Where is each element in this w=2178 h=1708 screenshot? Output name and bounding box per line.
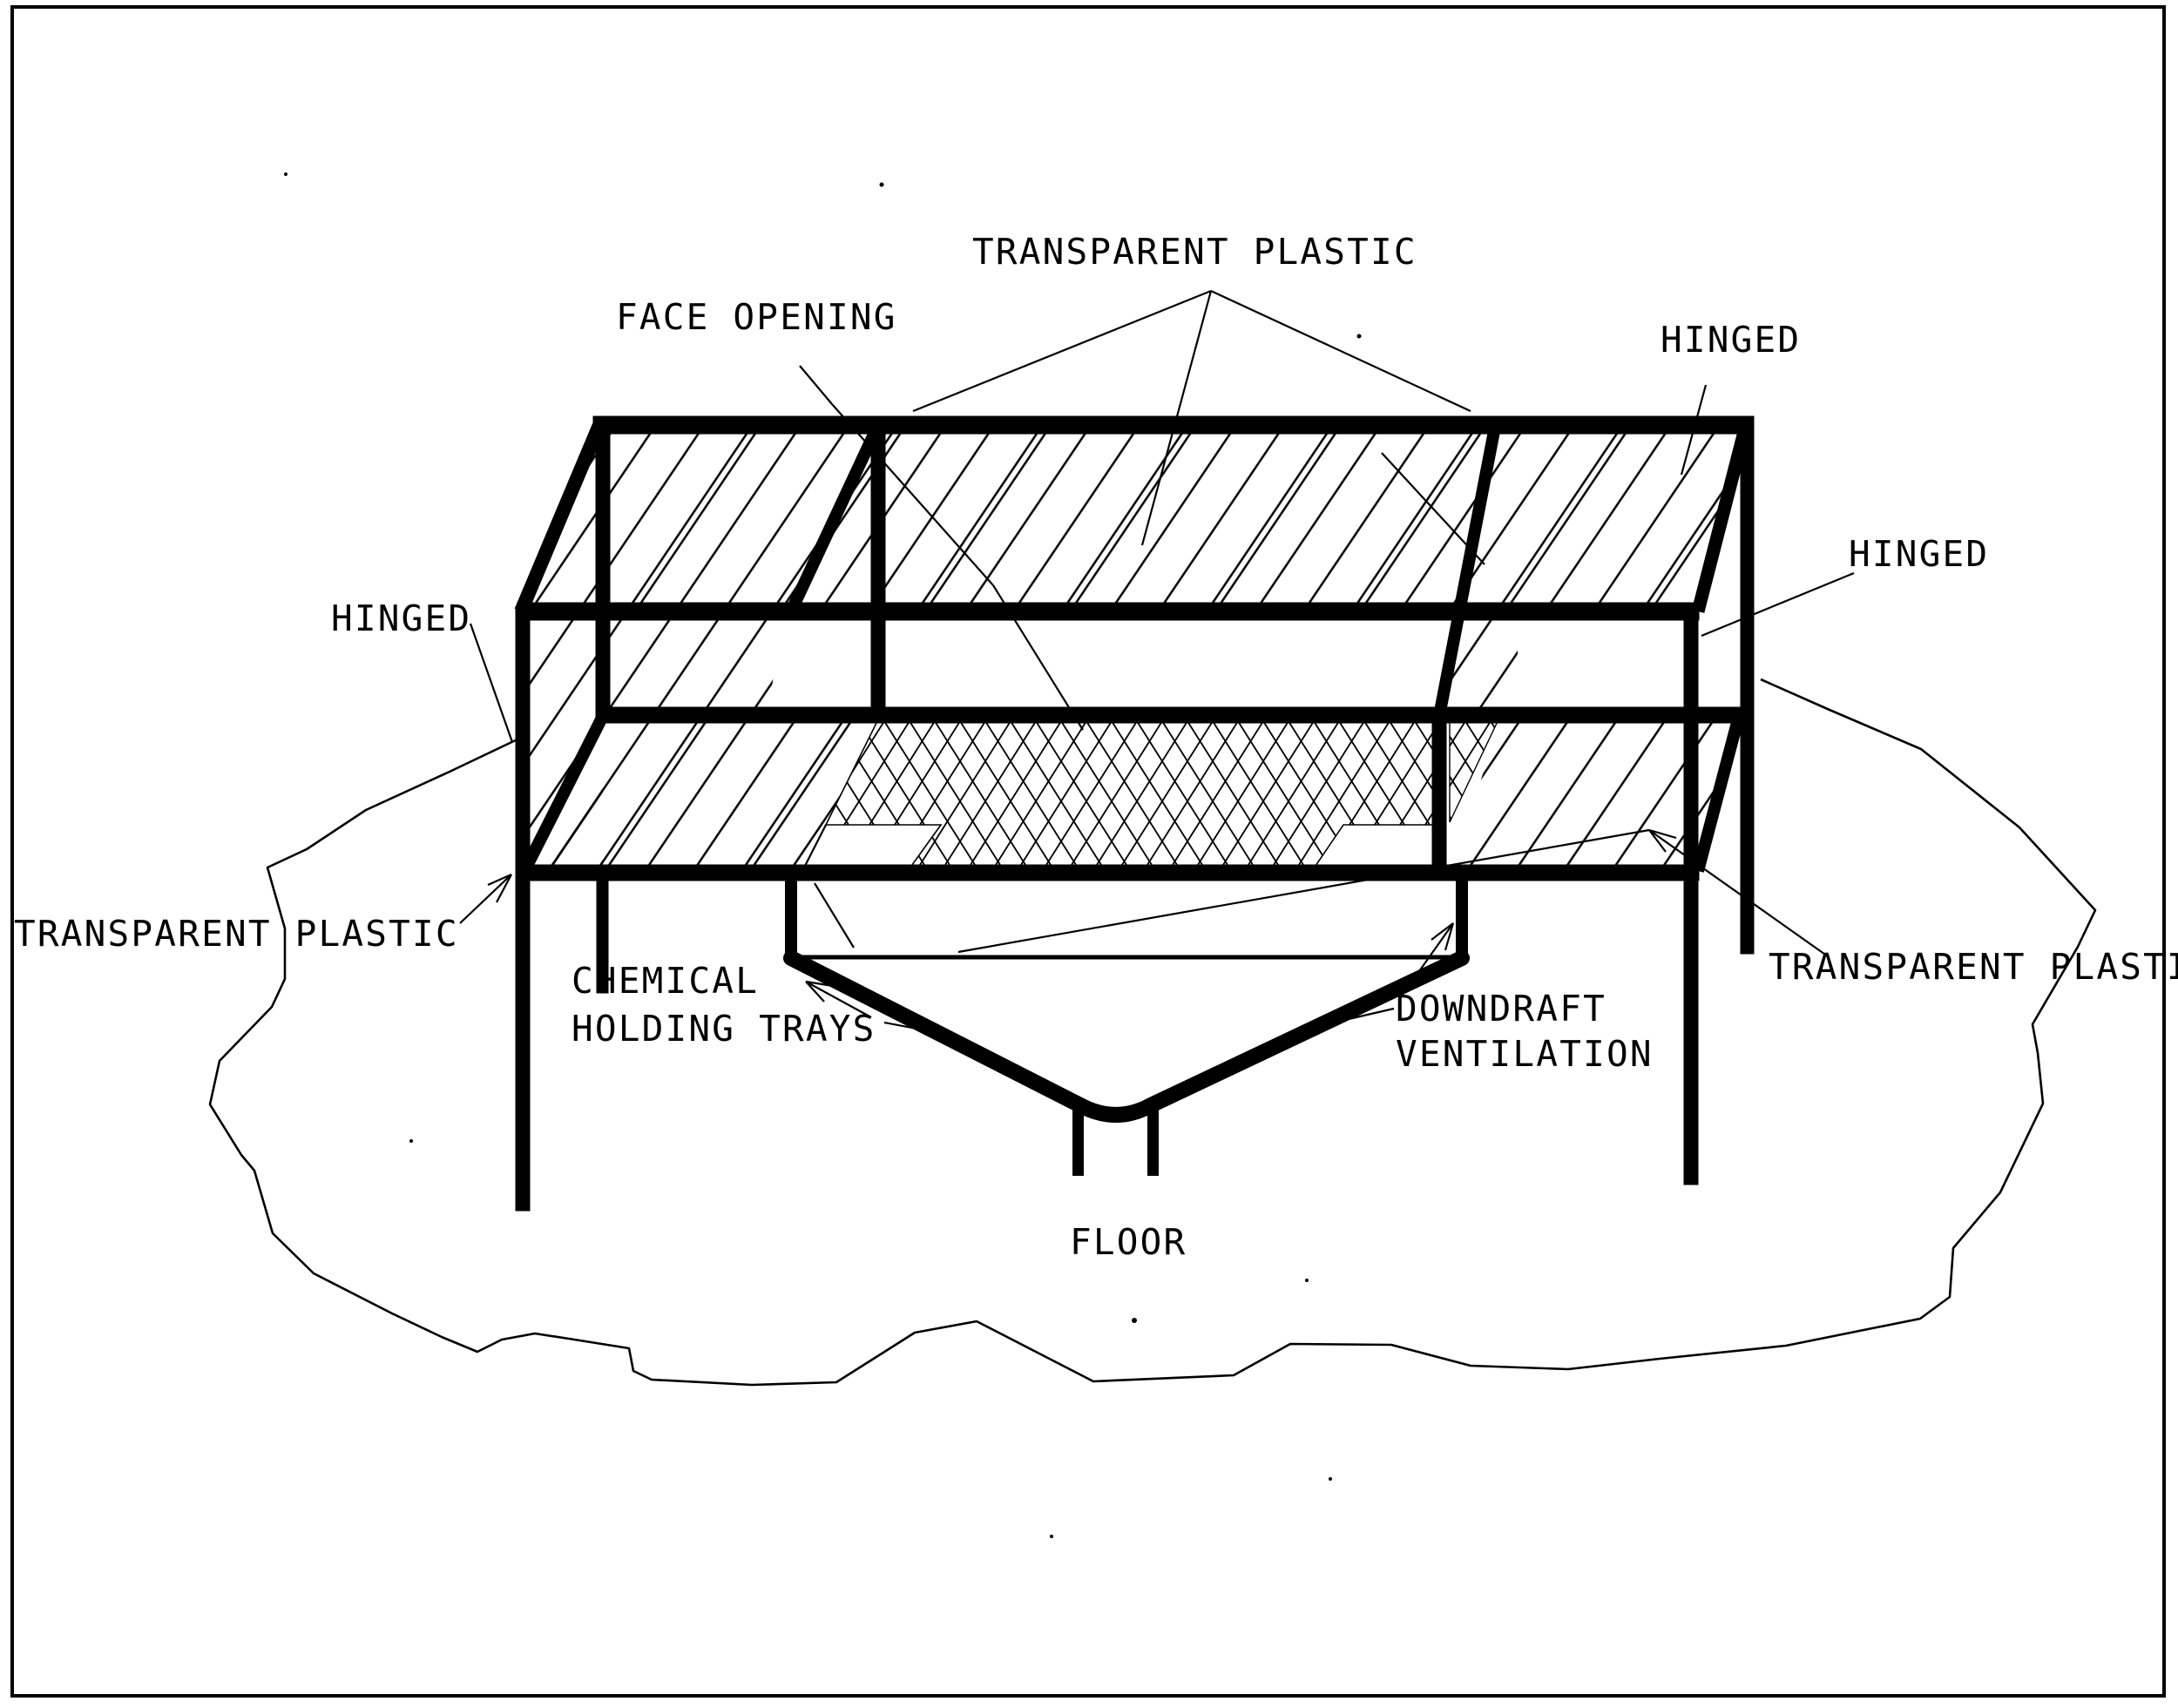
speckle (409, 1139, 413, 1143)
leader-tp-top-right (1211, 291, 1471, 411)
leader-hinged-right (1701, 573, 1854, 636)
rear-left-post (596, 425, 610, 721)
label-holding-trays: HOLDING TRAYS (572, 1008, 876, 1050)
diagram-canvas: TRANSPARENT PLASTIC FACE OPENING HINGED … (0, 0, 2178, 1708)
label-transparent-plastic-left: TRANSPARENT PLASTIC (14, 913, 459, 955)
front-top-rail (517, 603, 1699, 620)
speckle (284, 172, 287, 176)
downdraft-funnel (791, 958, 1462, 1115)
speckle (1329, 1477, 1332, 1481)
label-hinged-left: HINGED (331, 597, 471, 639)
chemical-tray-and-funnel (785, 873, 1468, 1176)
leader-tp-top-left (913, 291, 1211, 411)
speckle (1305, 1279, 1309, 1282)
label-ventilation: VENTILATION (1396, 1033, 1654, 1075)
mesh-screen (802, 716, 1500, 873)
funnel-right-leg (1147, 1108, 1159, 1176)
mesh-screen-main (826, 716, 1439, 871)
label-hinged-top-right: HINGED (1661, 319, 1801, 361)
work-surface-rail (517, 865, 1699, 881)
stray-line-tray (815, 883, 854, 948)
front-left-post (516, 610, 530, 1211)
label-downdraft: DOWNDRAFT (1396, 988, 1606, 1030)
speckle (1050, 1535, 1053, 1538)
front-upper-left-panel-hatch (603, 620, 782, 720)
label-transparent-plastic-top: TRANSPARENT PLASTIC (972, 231, 1417, 273)
label-hinged-right: HINGED (1849, 533, 1989, 575)
leader-tp-right (1649, 830, 1828, 956)
speckle (880, 183, 884, 187)
scanned-diagram-page: TRANSPARENT PLASTIC FACE OPENING HINGED … (0, 0, 2178, 1708)
roof-panel-hatch-bold (521, 425, 1746, 611)
leader-hinged-left (470, 624, 512, 742)
leader-tp-left (460, 874, 511, 923)
speckle (1132, 1318, 1137, 1323)
funnel-left-leg (1072, 1108, 1084, 1176)
label-chemical: CHEMICAL (572, 960, 759, 1002)
speckle (1357, 334, 1362, 339)
tray-right-edge (1456, 873, 1468, 960)
tray-left-edge (785, 873, 797, 960)
label-floor: FLOOR (1070, 1221, 1187, 1263)
rear-right-post (1741, 425, 1754, 954)
center-divider-post (1432, 714, 1446, 873)
label-transparent-plastic-right: TRANSPARENT PLASTI (1769, 946, 2178, 988)
face-divider-post (871, 425, 885, 719)
label-face-opening: FACE OPENING (616, 296, 897, 338)
front-right-post (1684, 610, 1698, 1185)
mid-rail (598, 707, 1754, 723)
